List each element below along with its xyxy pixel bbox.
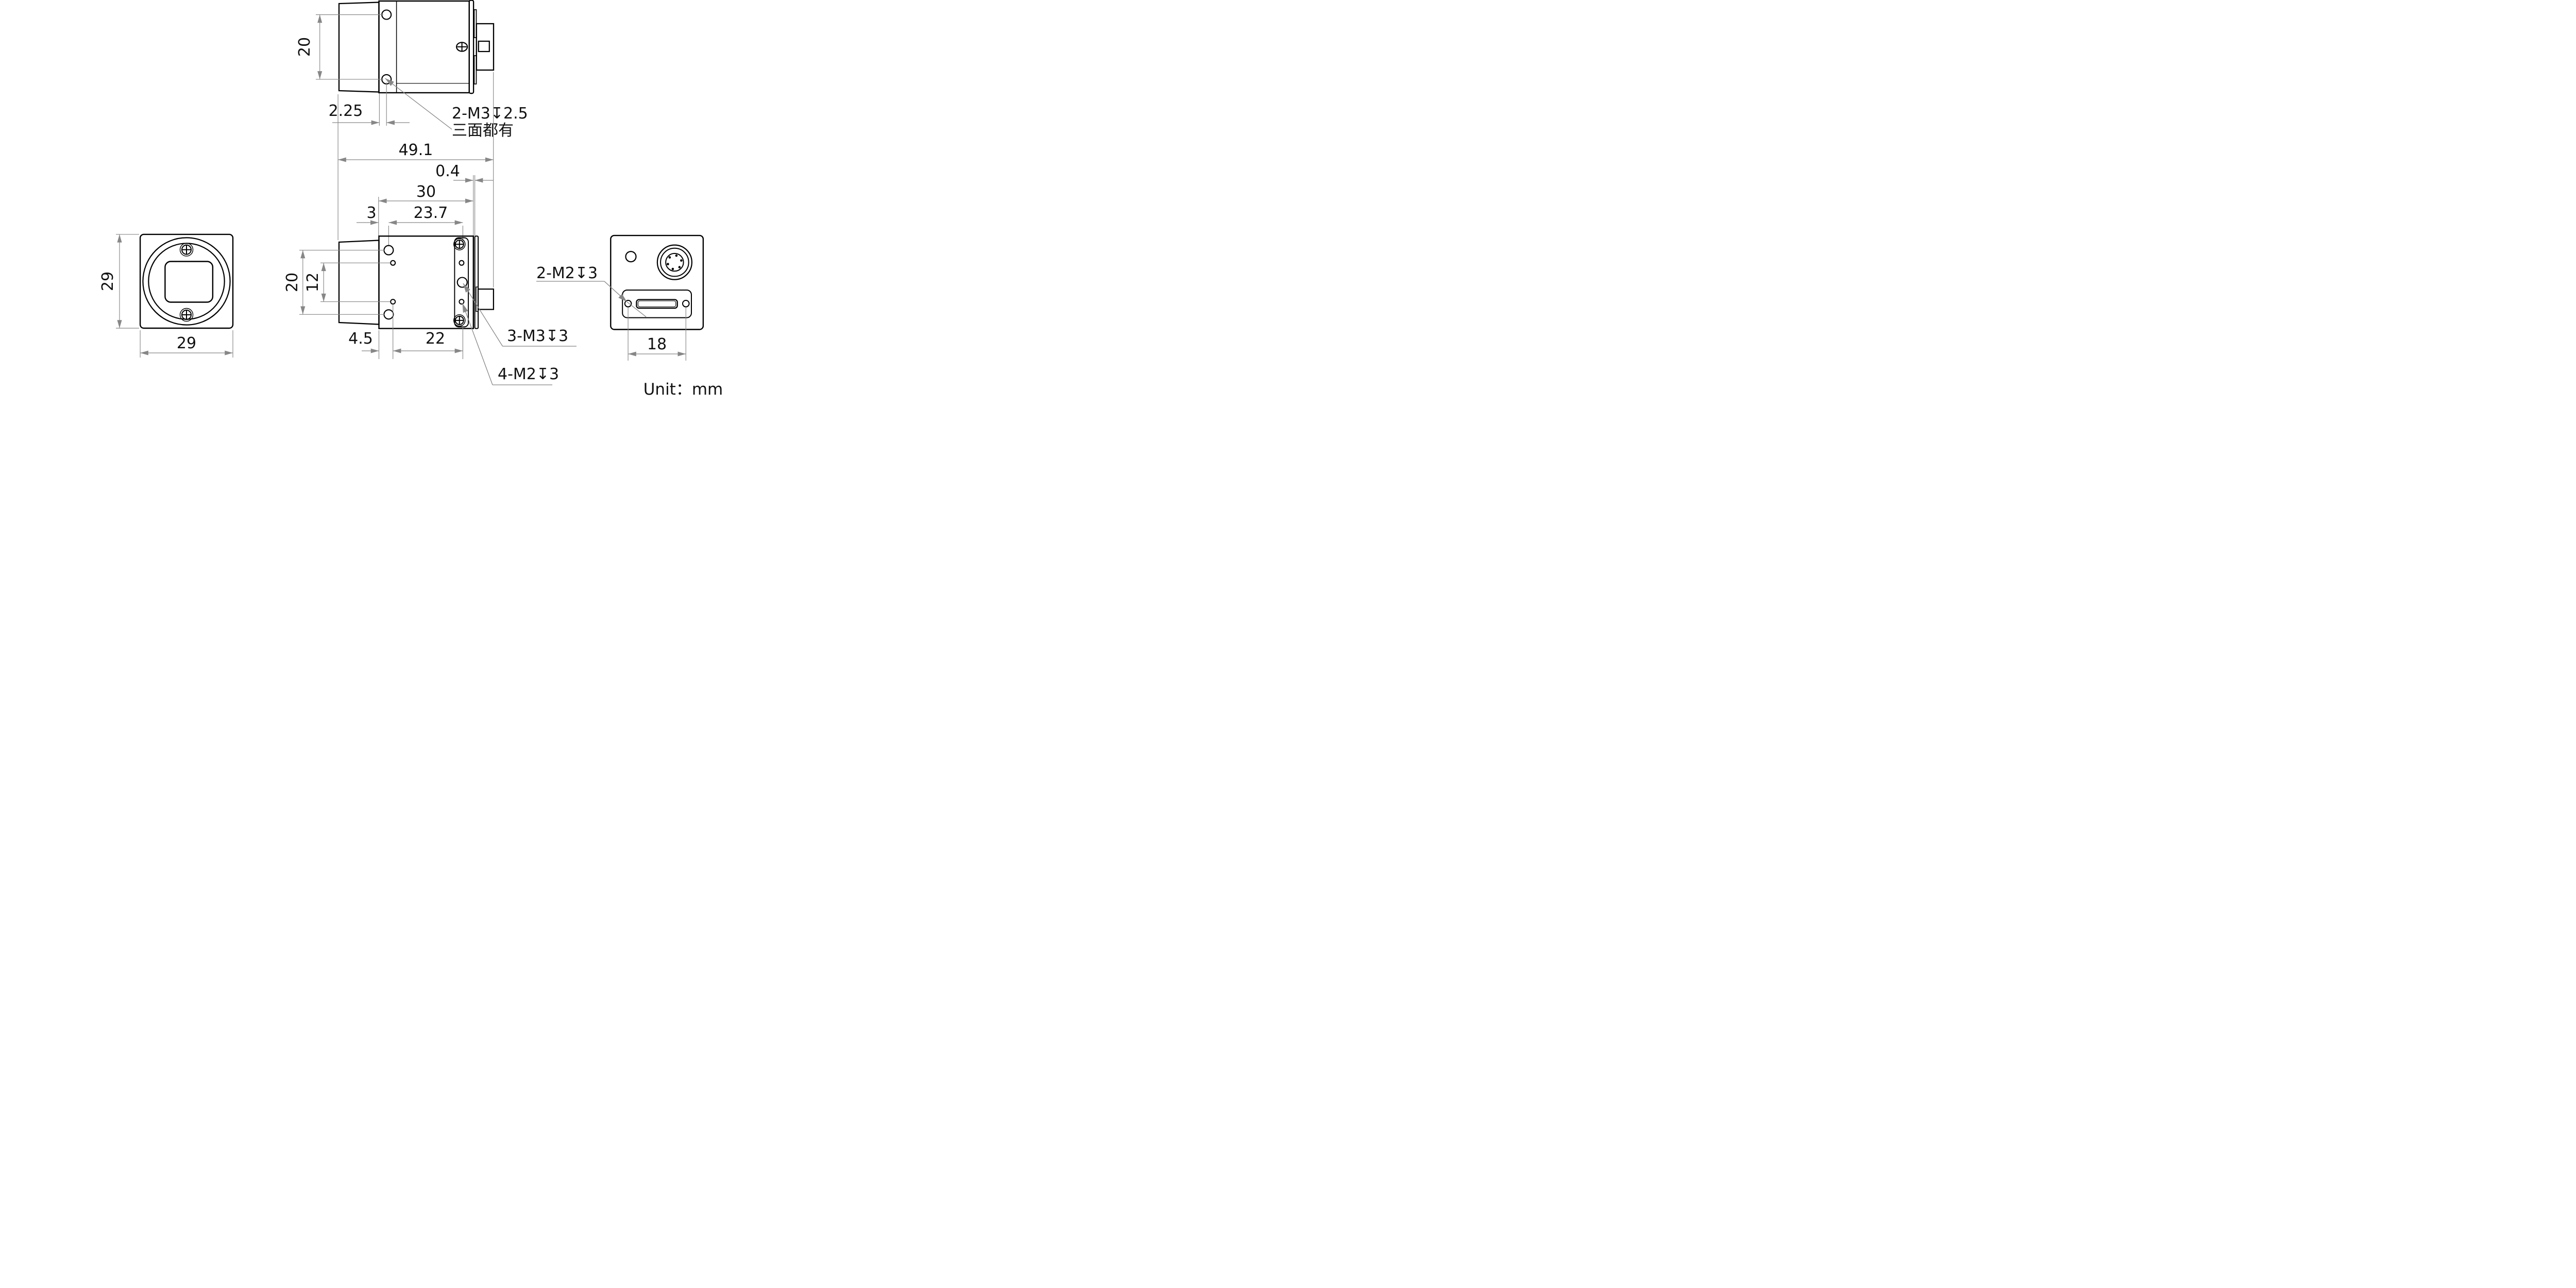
dim-label-0.4: 0.4 bbox=[435, 162, 460, 180]
dim-top-hole-offset: 2.25 bbox=[329, 82, 410, 126]
camera-dimension-drawing: 20 2.25 2-M3↧2.5 三面都有 49.1 bbox=[0, 0, 808, 404]
thread-note-line1: 2-M3↧2.5 bbox=[452, 105, 528, 123]
dim-body-length: 30 bbox=[379, 183, 473, 201]
dim-label-29-width: 29 bbox=[177, 334, 196, 352]
dim-front-width: 29 bbox=[140, 330, 233, 358]
front-screw-bottom bbox=[180, 309, 193, 321]
dim-label-2.25: 2.25 bbox=[329, 102, 363, 120]
m2-hole-rear-top bbox=[459, 261, 464, 265]
front-view: 29 29 bbox=[99, 234, 233, 358]
back-plate-top bbox=[469, 1, 473, 94]
m2-hole-rear-bottom bbox=[459, 299, 464, 304]
dim-label-22: 22 bbox=[426, 330, 445, 348]
dim-front-height: 29 bbox=[99, 234, 139, 328]
connector-recess bbox=[622, 290, 691, 318]
dim-label-30: 30 bbox=[416, 183, 436, 201]
unit-note: Unit：mm bbox=[643, 380, 723, 399]
dim-label-4.5: 4.5 bbox=[348, 330, 373, 348]
side-screw-top-view bbox=[456, 42, 467, 51]
m3-hole-rear-center bbox=[457, 278, 467, 287]
thread-note-m2: 4-M2↧3 bbox=[498, 365, 559, 383]
top-view: 20 2.25 2-M3↧2.5 三面都有 bbox=[296, 1, 528, 140]
sensor-window bbox=[165, 262, 213, 302]
m3-hole-side-top bbox=[384, 246, 393, 255]
case-screw-bottom bbox=[454, 315, 465, 326]
front-screw-top bbox=[180, 243, 193, 256]
camera-body-top bbox=[379, 1, 469, 93]
thread-note-m3: 3-M3↧3 bbox=[507, 327, 568, 345]
m2-hole-back-right bbox=[683, 300, 689, 307]
back-face bbox=[611, 235, 703, 329]
dim-back-hole-span: 18 bbox=[628, 308, 686, 361]
m3-hole-side-bottom bbox=[384, 310, 393, 319]
dim-hole-span: 23.7 bbox=[388, 204, 463, 223]
led-indicator-hole bbox=[626, 251, 636, 262]
m2-hole-side-top bbox=[391, 261, 395, 265]
dim-label-12: 12 bbox=[304, 273, 322, 292]
thread-note-line2: 三面都有 bbox=[452, 122, 514, 140]
dim-side-bottom: 4.5 22 bbox=[348, 305, 463, 359]
m2-hole-back-left bbox=[625, 300, 632, 307]
data-connector-slot-inner bbox=[638, 301, 675, 307]
drawing-canvas: 20 2.25 2-M3↧2.5 三面都有 49.1 bbox=[0, 0, 808, 404]
lens-barrel-top bbox=[339, 3, 379, 92]
side-view: 20 12 4.5 22 3-M3↧3 4-M2↧3 bbox=[283, 236, 577, 385]
lens-barrel-side bbox=[339, 241, 379, 325]
back-plate-side bbox=[475, 236, 479, 328]
connector-latch-hole bbox=[479, 41, 489, 52]
dim-overall-length: 49.1 bbox=[338, 141, 494, 160]
dim-rear-gap: 0.4 bbox=[435, 162, 494, 180]
dim-label-20-top: 20 bbox=[296, 37, 314, 57]
dim-side-hole-spacing: 20 bbox=[283, 250, 385, 315]
dim-side-small-hole-spacing: 12 bbox=[304, 263, 390, 301]
connector-stub-side bbox=[478, 289, 494, 310]
dim-label-18: 18 bbox=[647, 335, 667, 353]
top-thread-note: 2-M3↧2.5 三面都有 bbox=[385, 78, 528, 140]
dim-label-3: 3 bbox=[366, 204, 376, 222]
dim-label-29-height: 29 bbox=[99, 272, 117, 291]
power-io-connector bbox=[657, 245, 692, 280]
dim-label-20-side: 20 bbox=[283, 273, 301, 292]
m2-hole-side-bottom bbox=[391, 299, 395, 304]
dim-face-to-hole: 3 bbox=[357, 204, 379, 223]
thread-note-back: 2-M2↧3 bbox=[536, 264, 598, 282]
dim-label-23.7: 23.7 bbox=[414, 204, 448, 222]
case-screw-top bbox=[454, 239, 465, 250]
side-thread-note-m3: 3-M3↧3 bbox=[463, 283, 577, 346]
dim-label-49.1: 49.1 bbox=[399, 141, 433, 159]
